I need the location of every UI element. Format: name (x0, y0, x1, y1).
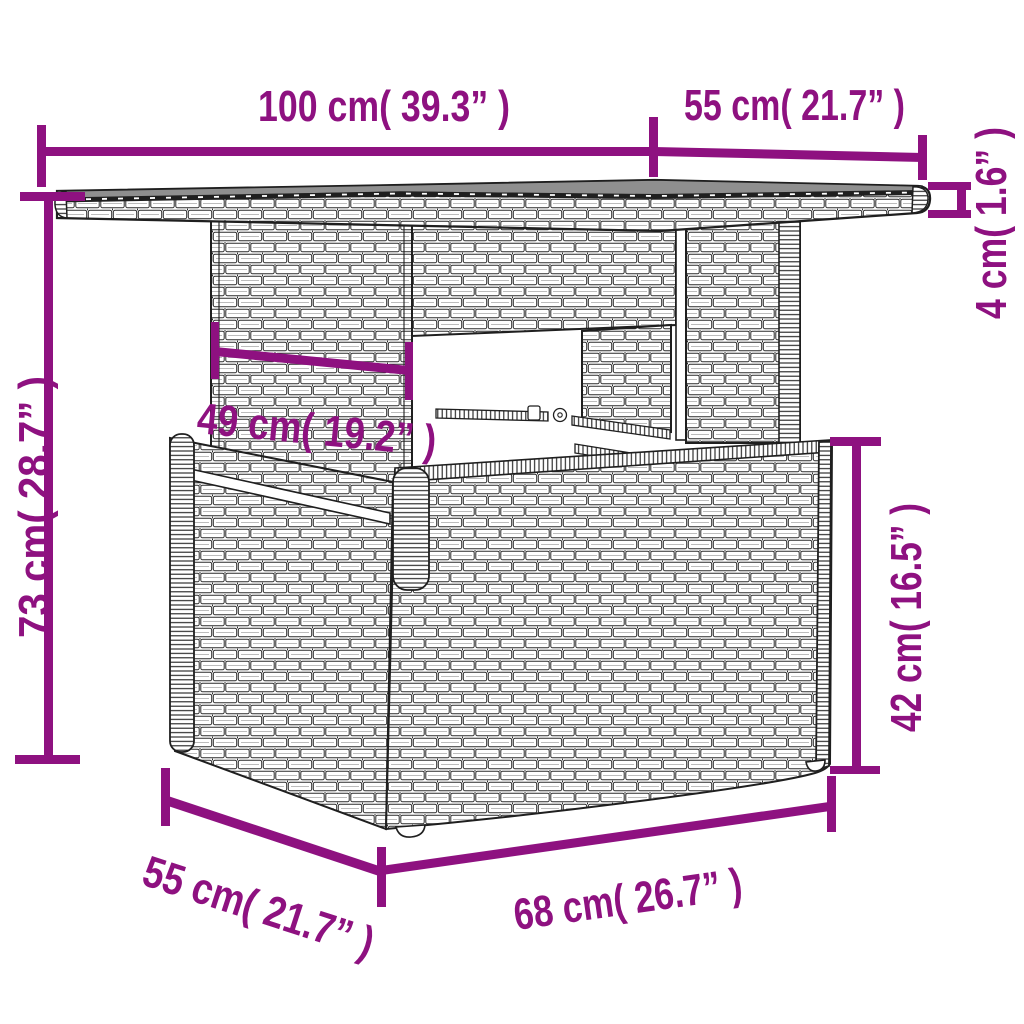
svg-text:42 cm( 16.5” ): 42 cm( 16.5” ) (882, 503, 931, 732)
svg-text:4 cm( 1.6” ): 4 cm( 1.6” ) (967, 127, 1016, 319)
svg-text:73 cm( 28.7” ): 73 cm( 28.7” ) (10, 376, 59, 638)
svg-text:55 cm( 21.7” ): 55 cm( 21.7” ) (684, 81, 905, 130)
svg-text:100 cm( 39.3” ): 100 cm( 39.3” ) (258, 82, 510, 131)
